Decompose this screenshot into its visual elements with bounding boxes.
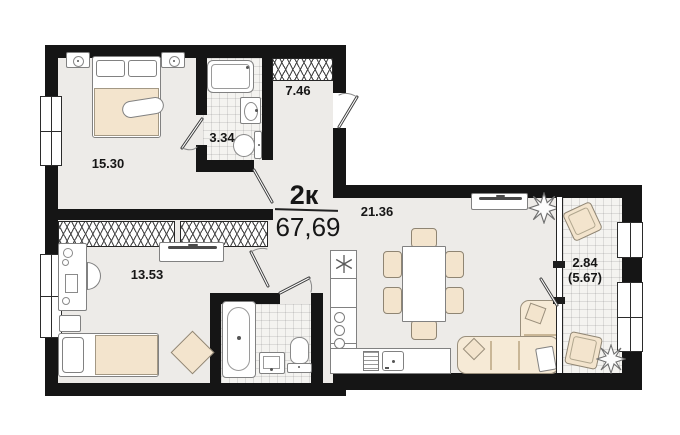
tv-unit-room2 [159, 242, 224, 262]
dining-table [402, 246, 446, 322]
window-balcony-bottom [617, 282, 643, 352]
label-kitchen-living-area: 21.36 [354, 205, 400, 219]
bed-pillow-left [96, 60, 125, 77]
floor-plan: 15.30 3.34 7.46 13.53 21.36 2.84 (5.67) … [0, 0, 680, 435]
dining-chair-right-1 [445, 251, 464, 278]
single-bed-blanket [95, 335, 158, 375]
dining-chair-left-2 [383, 287, 402, 314]
partition-node [553, 297, 565, 304]
label-balcony-total-area: (5.67) [561, 271, 609, 285]
wall-bath-big-right [311, 293, 323, 384]
wall-bath-small-bottom [196, 160, 254, 172]
label-bedroom-area: 15.30 [82, 157, 134, 171]
dining-chair-bottom [411, 320, 437, 340]
bathtub [222, 301, 256, 378]
sofa-divider [524, 334, 556, 336]
stove [330, 307, 357, 344]
shower-cabin [207, 60, 254, 93]
dining-chair-left-1 [383, 251, 402, 278]
label-room2-area: 13.53 [121, 268, 173, 282]
kitchen-sink-basin [382, 351, 404, 371]
stove-burner [334, 312, 345, 323]
dining-chair-top [411, 228, 437, 248]
dining-chair-right-2 [445, 287, 464, 314]
apartment-type: 2к [280, 181, 328, 211]
wall-bath-big-left [210, 293, 221, 384]
nightstand-left [66, 52, 90, 68]
bed-pillow-right [128, 60, 157, 77]
door-entrance [339, 97, 357, 127]
tv-unit-living [471, 193, 528, 210]
wall-left-b [45, 166, 58, 254]
single-bed-pillow [62, 337, 84, 373]
plant-icon [596, 344, 626, 374]
label-balcony-area: 2.84 [566, 256, 604, 270]
label-hallway-area: 7.46 [279, 84, 317, 98]
total-area: 67,69 [273, 213, 343, 242]
washbasin-small [240, 97, 261, 124]
washbasin-big [259, 352, 285, 374]
wall-bottom-left-block [45, 383, 346, 396]
fridge-snowflake-icon [332, 252, 356, 276]
desk [58, 243, 87, 311]
partition-node [553, 261, 565, 268]
nightstand-room2 [59, 315, 81, 332]
kitchen-sink-drainer [363, 351, 379, 371]
window-bedroom [40, 96, 62, 166]
toilet-big-bowl [290, 337, 309, 364]
wall-bedroom-bath-divider [196, 58, 207, 115]
wall-hall-right-top [333, 45, 346, 93]
nightstand-right [161, 52, 185, 68]
sofa-pillow-white [535, 346, 557, 373]
wardrobe-hallway [272, 58, 333, 81]
label-bathroom-small-area: 3.34 [203, 131, 241, 145]
wall-left-a [45, 58, 58, 96]
window-balcony-top [617, 222, 643, 258]
door-entrance-arc [339, 93, 357, 97]
wall-bottom-right-block [333, 373, 642, 390]
toilet-big-tank [287, 363, 312, 373]
wall-top-left-block [45, 45, 346, 58]
wall-bedroom-room2-divider [58, 209, 273, 220]
stove-burner [334, 325, 345, 336]
wall-right-b [622, 258, 642, 282]
wall-right-a [622, 185, 642, 222]
sofa-divider [518, 341, 520, 370]
sofa-divider [490, 341, 492, 370]
fridge [330, 250, 357, 279]
